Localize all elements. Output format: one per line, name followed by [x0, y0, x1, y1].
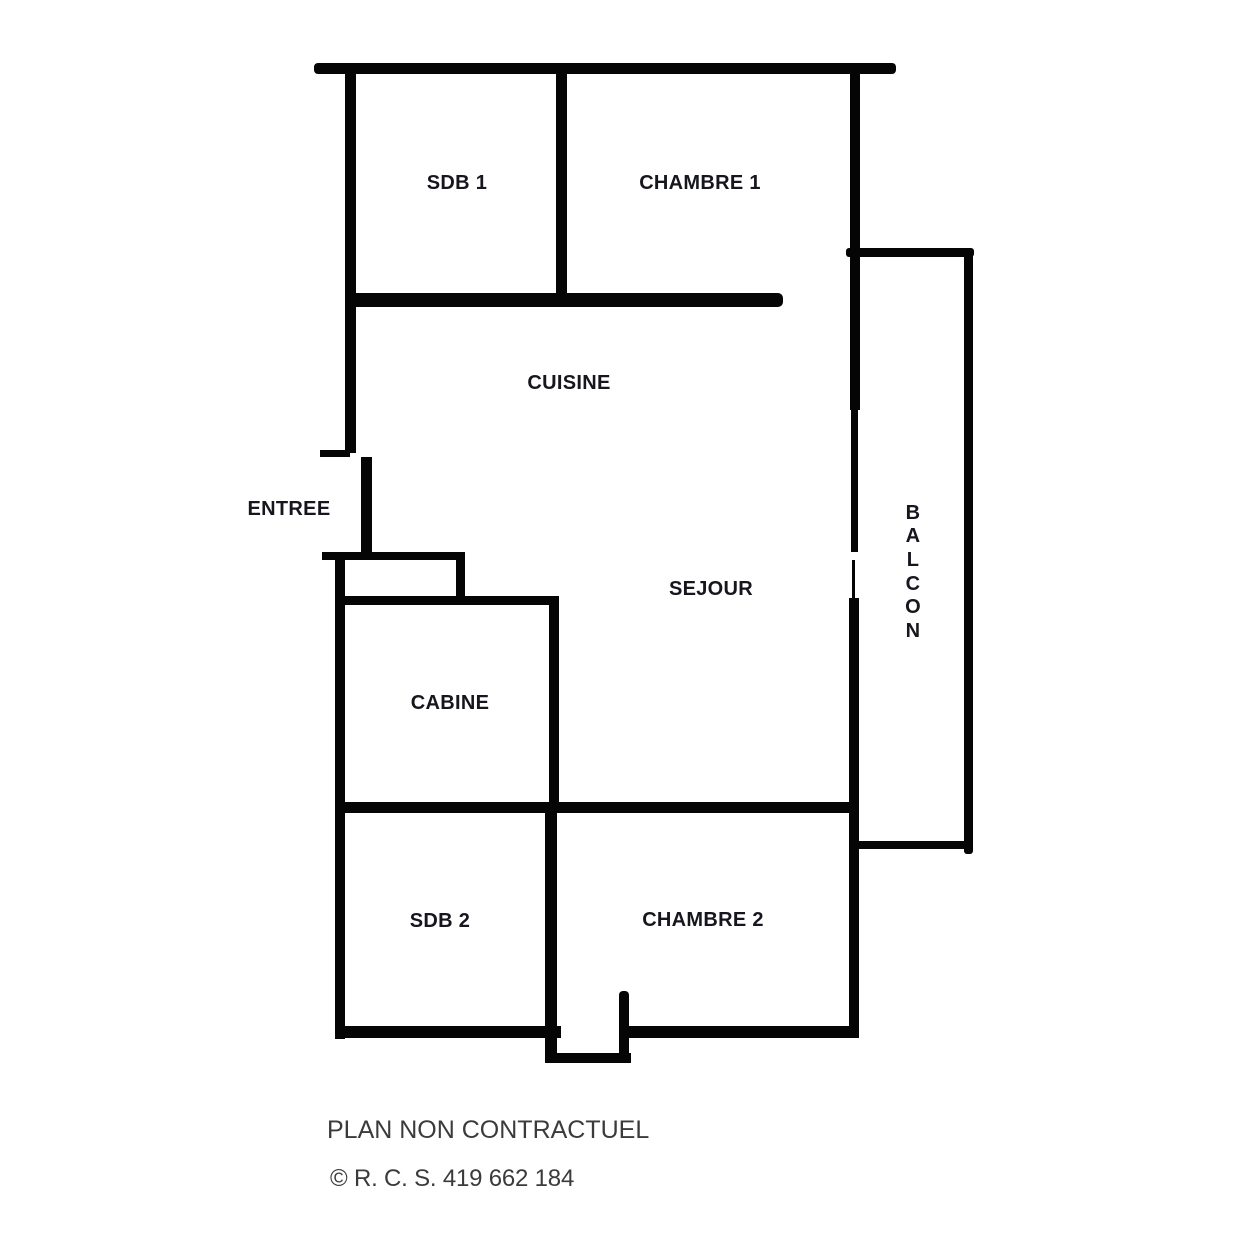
- svg-text:CABINE: CABINE: [411, 692, 489, 714]
- svg-text:CHAMBRE 2: CHAMBRE 2: [642, 909, 764, 931]
- svg-text:CHAMBRE 1: CHAMBRE 1: [639, 172, 761, 194]
- svg-text:A: A: [906, 525, 921, 547]
- svg-text:PLAN NON CONTRACTUEL: PLAN NON CONTRACTUEL: [327, 1116, 649, 1144]
- svg-text:SEJOUR: SEJOUR: [669, 578, 753, 600]
- svg-text:ENTREE: ENTREE: [248, 498, 331, 520]
- svg-text:C: C: [906, 573, 921, 595]
- svg-text:L: L: [907, 549, 920, 571]
- svg-text:B: B: [906, 502, 921, 524]
- svg-text:SDB 1: SDB 1: [427, 172, 487, 194]
- svg-text:© R. C. S. 419 662 184: © R. C. S. 419 662 184: [330, 1165, 574, 1192]
- svg-text:O: O: [905, 596, 921, 618]
- svg-text:CUISINE: CUISINE: [527, 372, 610, 394]
- svg-text:N: N: [906, 620, 921, 642]
- svg-text:SDB 2: SDB 2: [410, 910, 470, 932]
